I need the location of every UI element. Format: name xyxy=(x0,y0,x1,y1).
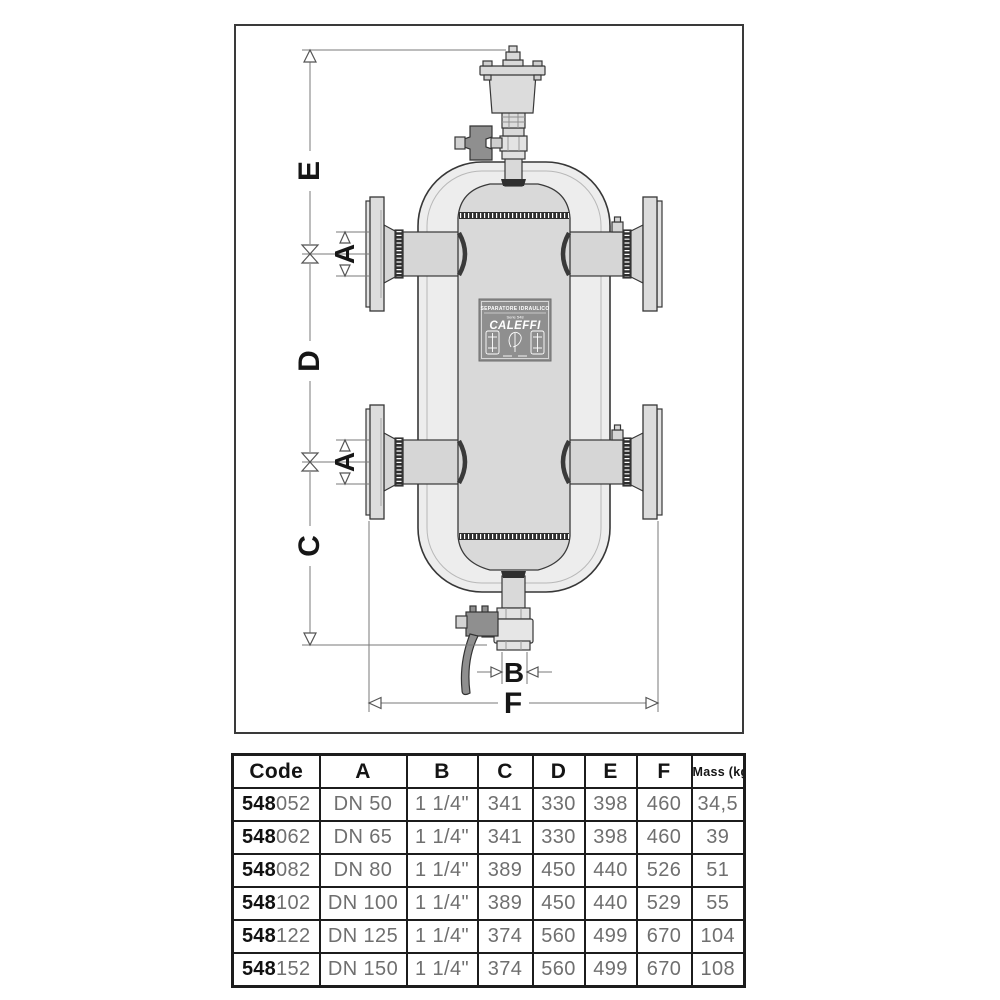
table-row: 548152 DN 150 1 1/4" 374 560 499 670 108 xyxy=(233,953,745,987)
table-row: 548062 DN 65 1 1/4" 341 330 398 460 39 xyxy=(233,821,745,854)
d-cell: 560 xyxy=(533,953,585,987)
dim-label-f: F xyxy=(504,687,522,720)
b-cell: 1 1/4" xyxy=(407,788,478,821)
dim-label-a-bottom: A xyxy=(329,452,360,472)
plate-subtitle: Serie 548 xyxy=(506,315,524,320)
d-cell: 450 xyxy=(533,887,585,920)
a-cell: DN 65 xyxy=(320,821,407,854)
caleffi-nameplate: SEPARATORE IDRAULICO Serie 548 CALEFFI xyxy=(479,299,551,361)
b-cell: 1 1/4" xyxy=(407,953,478,987)
f-cell: 460 xyxy=(637,788,692,821)
code-suffix: 052 xyxy=(276,793,311,815)
vent-plug-icon xyxy=(612,430,623,440)
header-f: F xyxy=(637,755,692,789)
dim-label-a-top: A xyxy=(329,244,360,264)
plate-brand: CALEFFI xyxy=(489,320,541,332)
plate-title: SEPARATORE IDRAULICO xyxy=(480,306,549,312)
code-cell: 548082 xyxy=(233,854,320,887)
a-cell: DN 50 xyxy=(320,788,407,821)
f-cell: 526 xyxy=(637,854,692,887)
code-suffix: 122 xyxy=(276,925,311,947)
b-cell: 1 1/4" xyxy=(407,920,478,953)
d-cell: 330 xyxy=(533,821,585,854)
header-c: C xyxy=(478,755,533,789)
mass-cell: 104 xyxy=(692,920,745,953)
code-suffix: 062 xyxy=(276,826,311,848)
b-cell: 1 1/4" xyxy=(407,821,478,854)
separator-barrel xyxy=(458,184,570,570)
e-cell: 440 xyxy=(585,887,637,920)
header-code: Code xyxy=(233,755,320,789)
e-cell: 499 xyxy=(585,920,637,953)
b-cell: 1 1/4" xyxy=(407,854,478,887)
c-cell: 341 xyxy=(478,821,533,854)
code-cell: 548062 xyxy=(233,821,320,854)
dim-label-b: B xyxy=(504,657,524,688)
f-cell: 460 xyxy=(637,821,692,854)
table-row: 548082 DN 80 1 1/4" 389 450 440 526 51 xyxy=(233,854,745,887)
code-prefix: 548 xyxy=(242,925,276,947)
vent-plug-icon xyxy=(612,222,623,232)
e-cell: 440 xyxy=(585,854,637,887)
mass-cell: 34,5 xyxy=(692,788,745,821)
e-cell: 398 xyxy=(585,821,637,854)
dimensions-table: Code A B C D E F Mass (kg) 548052 DN 50 … xyxy=(231,753,746,988)
header-mass: Mass (kg) xyxy=(692,755,745,789)
code-cell: 548052 xyxy=(233,788,320,821)
code-prefix: 548 xyxy=(242,826,276,848)
dim-label-d: D xyxy=(293,350,326,372)
header-a: A xyxy=(320,755,407,789)
mass-cell: 39 xyxy=(692,821,745,854)
code-cell: 548122 xyxy=(233,920,320,953)
table-row: 548102 DN 100 1 1/4" 389 450 440 529 55 xyxy=(233,887,745,920)
c-cell: 374 xyxy=(478,920,533,953)
header-b: B xyxy=(407,755,478,789)
table-row: 548052 DN 50 1 1/4" 341 330 398 460 34,5 xyxy=(233,788,745,821)
a-cell: DN 80 xyxy=(320,854,407,887)
dim-label-e: E xyxy=(293,161,326,181)
code-cell: 548152 xyxy=(233,953,320,987)
code-prefix: 548 xyxy=(242,859,276,881)
c-cell: 389 xyxy=(478,887,533,920)
a-cell: DN 125 xyxy=(320,920,407,953)
code-suffix: 102 xyxy=(276,892,311,914)
e-cell: 499 xyxy=(585,953,637,987)
f-cell: 529 xyxy=(637,887,692,920)
a-cell: DN 100 xyxy=(320,887,407,920)
table-row: 548122 DN 125 1 1/4" 374 560 499 670 104 xyxy=(233,920,745,953)
e-cell: 398 xyxy=(585,788,637,821)
a-cell: DN 150 xyxy=(320,953,407,987)
f-cell: 670 xyxy=(637,920,692,953)
page: SEPARATORE IDRAULICO Serie 548 CALEFFI xyxy=(0,0,1000,1000)
c-cell: 341 xyxy=(478,788,533,821)
technical-drawing: SEPARATORE IDRAULICO Serie 548 CALEFFI xyxy=(0,0,1000,745)
mass-cell: 51 xyxy=(692,854,745,887)
table-header-row: Code A B C D E F Mass (kg) xyxy=(233,755,745,789)
dim-label-c: C xyxy=(293,535,326,557)
code-prefix: 548 xyxy=(242,958,276,980)
header-d: D xyxy=(533,755,585,789)
header-e: E xyxy=(585,755,637,789)
b-cell: 1 1/4" xyxy=(407,887,478,920)
code-suffix: 152 xyxy=(276,958,311,980)
c-cell: 374 xyxy=(478,953,533,987)
d-cell: 330 xyxy=(533,788,585,821)
code-prefix: 548 xyxy=(242,892,276,914)
code-prefix: 548 xyxy=(242,793,276,815)
mass-cell: 108 xyxy=(692,953,745,987)
mass-cell: 55 xyxy=(692,887,745,920)
f-cell: 670 xyxy=(637,953,692,987)
code-suffix: 082 xyxy=(276,859,311,881)
code-cell: 548102 xyxy=(233,887,320,920)
c-cell: 389 xyxy=(478,854,533,887)
d-cell: 560 xyxy=(533,920,585,953)
d-cell: 450 xyxy=(533,854,585,887)
